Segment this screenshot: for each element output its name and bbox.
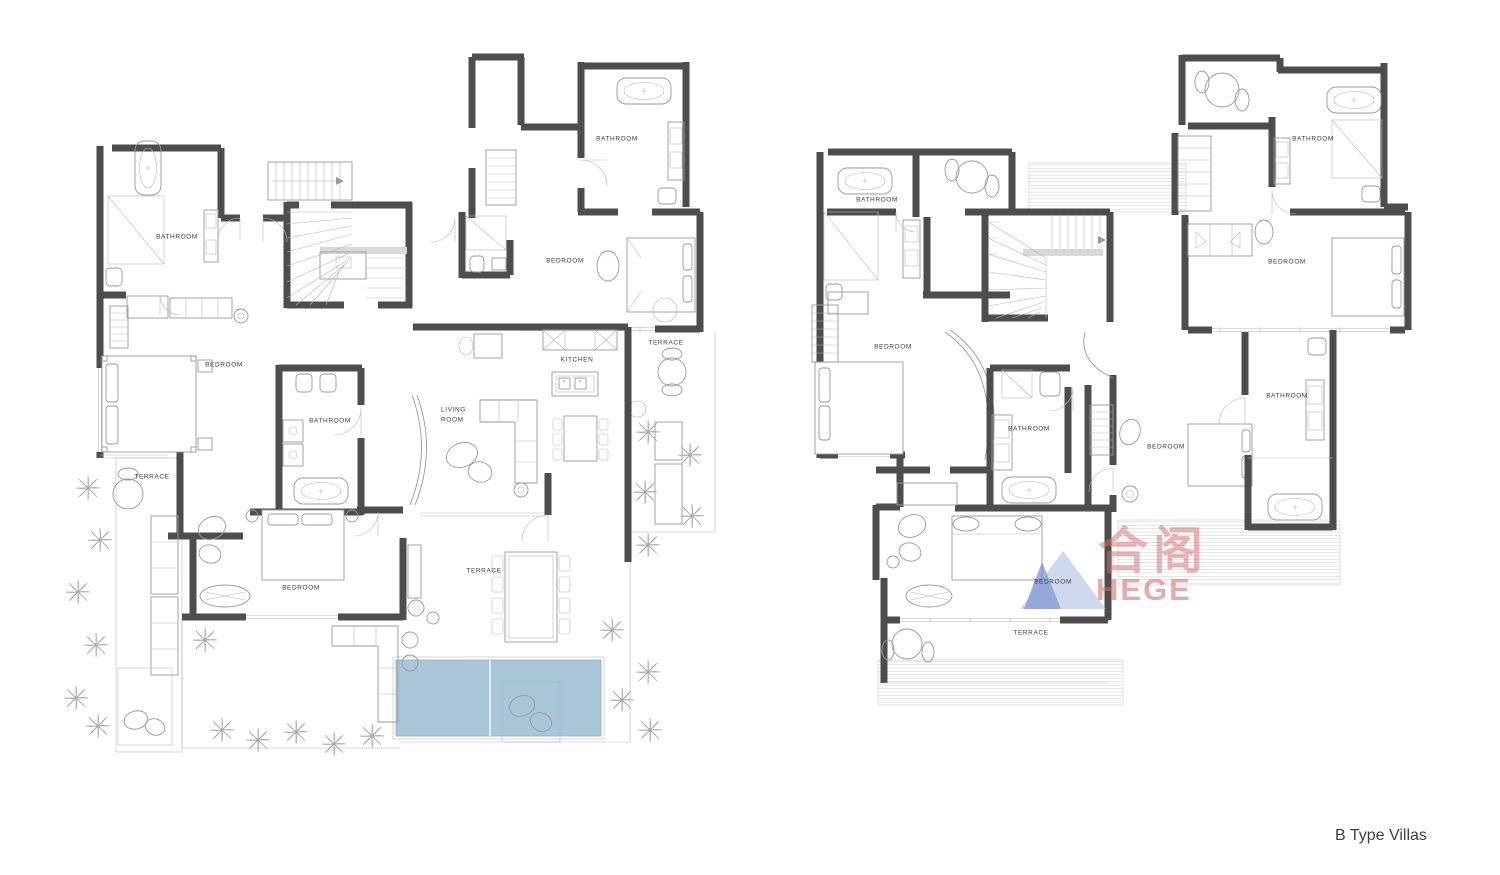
stair-tower-left bbox=[268, 162, 412, 308]
room-label-bedroom: BEDROOM bbox=[546, 258, 584, 265]
plan-right bbox=[812, 55, 1408, 705]
pool bbox=[393, 657, 604, 739]
room-label-bathroom: BATHROOM bbox=[1008, 426, 1050, 433]
room-label-bedroom: BEDROOM bbox=[1268, 259, 1306, 266]
room-label-bathroom: BATHROOM bbox=[1266, 393, 1308, 400]
kitchen-cabinets bbox=[543, 330, 617, 350]
room-label-bathroom: BATHROOM bbox=[856, 197, 898, 204]
room-label-kitchen: KITCHEN bbox=[561, 357, 594, 364]
floorplan-page: BATHROOM BATHROOM BEDROOM TERRACE KITCHE… bbox=[0, 0, 1500, 875]
page-title: B Type Villas bbox=[1335, 827, 1427, 845]
room-label-terrace: TERRACE bbox=[466, 568, 501, 575]
room-label-bedroom: BEDROOM bbox=[874, 344, 912, 351]
watermark-latin-text: HEGE bbox=[1096, 574, 1192, 605]
room-label-terrace: TERRACE bbox=[134, 474, 169, 481]
plan-left bbox=[63, 57, 715, 757]
room-label-bathroom: BATHROOM bbox=[156, 234, 198, 241]
watermark-cjk-text: 合阁 bbox=[1098, 526, 1208, 576]
room-label-living-room: LIVING ROOM bbox=[441, 405, 475, 425]
stair-tower-right bbox=[965, 212, 1110, 322]
room-label-bathroom: BATHROOM bbox=[596, 136, 638, 143]
palm-trees-left bbox=[63, 419, 705, 757]
room-label-bedroom: BEDROOM bbox=[1147, 444, 1185, 451]
room-label-bathroom: BATHROOM bbox=[1292, 136, 1334, 143]
room-label-terrace: TERRACE bbox=[648, 340, 683, 347]
room-label-bathroom: BATHROOM bbox=[309, 418, 351, 425]
room-label-bedroom: BEDROOM bbox=[282, 585, 320, 592]
room-label-terrace: TERRACE bbox=[1013, 630, 1048, 637]
room-label-bedroom: BEDROOM bbox=[1034, 579, 1072, 586]
floor-plan-svg bbox=[0, 0, 1500, 875]
room-label-bedroom: BEDROOM bbox=[205, 362, 243, 369]
